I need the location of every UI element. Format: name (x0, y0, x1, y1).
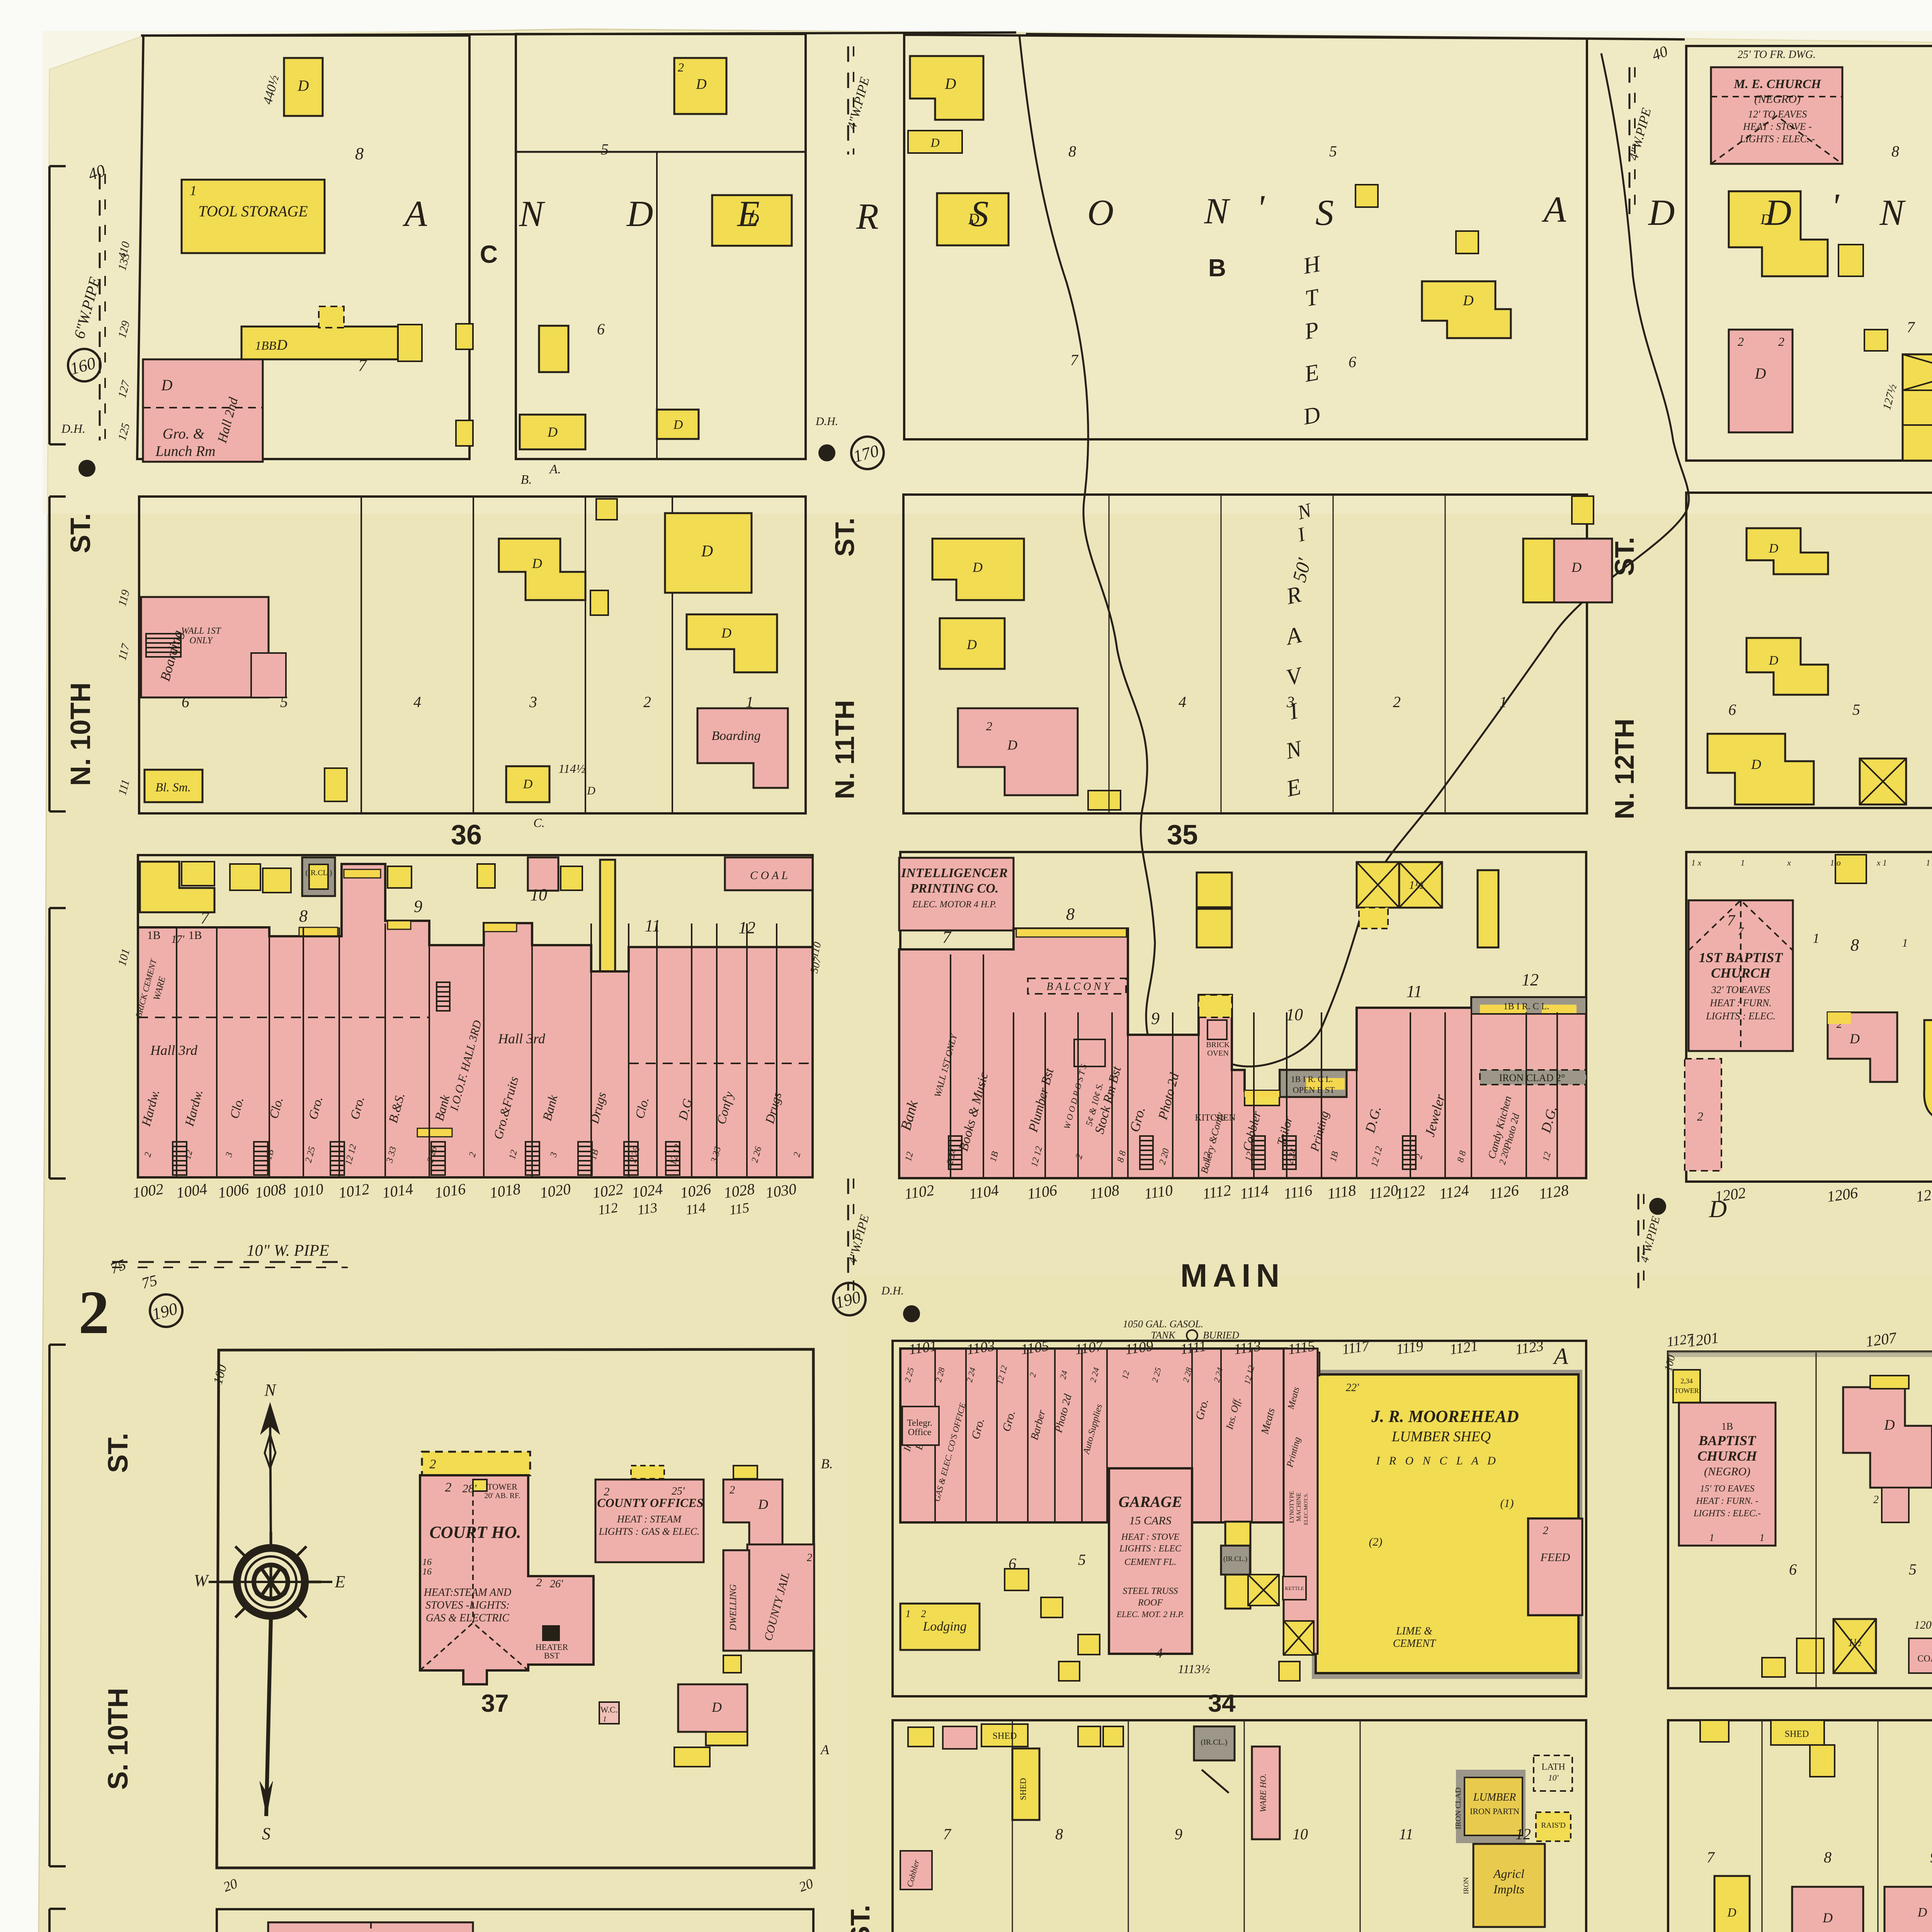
svg-text:x 1: x 1 (1876, 858, 1887, 867)
svg-text:LUMBER: LUMBER (1473, 1791, 1516, 1803)
svg-text:1: 1 (603, 1715, 607, 1723)
svg-text:1 x: 1 x (1691, 858, 1702, 867)
svg-text:IRON CLAD: IRON CLAD (1454, 1787, 1463, 1829)
svg-text:GARAGE: GARAGE (1119, 1493, 1182, 1510)
svg-text:D.H.: D.H. (881, 1284, 904, 1297)
svg-text:16: 16 (422, 1557, 432, 1567)
svg-text:8: 8 (1891, 143, 1899, 160)
svg-text:D: D (161, 376, 173, 394)
svg-text:9: 9 (414, 897, 422, 916)
svg-text:D: D (1648, 192, 1675, 233)
svg-text:A.: A. (549, 462, 561, 476)
svg-text:(NEGRO): (NEGRO) (1704, 1465, 1750, 1478)
svg-text:S. 10TH: S. 10TH (103, 1688, 134, 1790)
svg-text:D: D (276, 337, 287, 353)
svg-text:D: D (1463, 293, 1473, 309)
svg-text:6: 6 (182, 693, 189, 711)
svg-text:ROOF: ROOF (1138, 1598, 1163, 1608)
svg-text:D: D (626, 193, 653, 234)
svg-text:TOWER: TOWER (487, 1482, 517, 1492)
svg-text:1: 1 (1741, 858, 1745, 867)
svg-text:1: 1 (1499, 693, 1507, 711)
svg-text:OPEN B ST: OPEN B ST (1293, 1085, 1335, 1095)
svg-text:25': 25' (672, 1485, 685, 1497)
svg-text:IRON: IRON (1462, 1877, 1470, 1894)
svg-text:COURT HO.: COURT HO. (429, 1523, 521, 1542)
svg-text:Implts: Implts (1493, 1882, 1524, 1896)
svg-text:2: 2 (1393, 693, 1401, 711)
svg-text:D: D (1822, 1910, 1833, 1925)
svg-text:Gro. &: Gro. & (163, 426, 205, 442)
svg-text:': ' (1257, 187, 1265, 228)
svg-text:2: 2 (1738, 335, 1744, 349)
svg-text:2: 2 (730, 1484, 735, 1496)
svg-text:1B: 1B (147, 929, 160, 942)
svg-text:S: S (262, 1824, 270, 1843)
svg-text:8: 8 (1068, 143, 1076, 160)
svg-text:D: D (721, 625, 731, 641)
svg-text:OVEN: OVEN (1207, 1049, 1229, 1058)
svg-text:1: 1 (1709, 1532, 1714, 1543)
svg-text:114: 114 (685, 1200, 706, 1218)
svg-text:CHURCH: CHURCH (1697, 1448, 1757, 1464)
svg-text:7: 7 (358, 356, 367, 375)
svg-text:7: 7 (1070, 351, 1079, 369)
svg-text:8: 8 (299, 906, 308, 925)
svg-text:D: D (966, 637, 977, 652)
svg-text:WARE HO.: WARE HO. (1258, 1774, 1268, 1812)
svg-text:D: D (701, 543, 713, 560)
svg-text:7: 7 (201, 908, 210, 927)
svg-text:CEMENT FL.: CEMENT FL. (1124, 1557, 1176, 1567)
svg-text:D: D (1007, 737, 1017, 753)
svg-text:7: 7 (1738, 925, 1745, 938)
svg-text:SHED: SHED (1785, 1729, 1809, 1739)
svg-text:Lodging: Lodging (922, 1619, 966, 1634)
svg-text:INTELLIGENCER: INTELLIGENCER (901, 866, 1008, 880)
svg-text:D: D (758, 1497, 768, 1512)
svg-text:25' TO FR. DWG.: 25' TO FR. DWG. (1738, 49, 1816, 61)
svg-text:5: 5 (1078, 1551, 1086, 1568)
svg-text:PRINTING CO.: PRINTING CO. (910, 881, 999, 896)
svg-text:MACHINE: MACHINE (1296, 1493, 1302, 1522)
svg-text:10: 10 (530, 885, 547, 904)
svg-text:1: 1 (1813, 930, 1820, 946)
svg-text:2: 2 (1873, 1494, 1879, 1506)
svg-text:4: 4 (413, 693, 421, 711)
svg-text:2: 2 (986, 719, 992, 733)
svg-text:37: 37 (481, 1689, 509, 1717)
svg-text:3: 3 (529, 693, 537, 711)
svg-text:D.H.: D.H. (61, 422, 85, 435)
svg-text:6: 6 (1728, 701, 1736, 718)
svg-text:BAPTIST: BAPTIST (1698, 1433, 1757, 1448)
svg-text:BST: BST (544, 1651, 560, 1660)
svg-text:15' TO EAVES: 15' TO EAVES (1700, 1484, 1755, 1494)
svg-text:D: D (587, 784, 595, 797)
svg-text:36: 36 (451, 820, 482, 850)
svg-text:10: 10 (1286, 1005, 1303, 1024)
svg-text:D: D (1751, 757, 1761, 772)
svg-text:S: S (970, 193, 989, 234)
svg-text:D: D (673, 418, 683, 432)
svg-text:1: 1 (190, 183, 197, 198)
svg-text:D: D (1769, 653, 1779, 668)
svg-text:B.: B. (821, 1456, 833, 1471)
svg-text:1: 1 (1926, 858, 1930, 867)
svg-text:A: A (820, 1742, 830, 1757)
svg-text:SHED: SHED (1018, 1778, 1028, 1800)
svg-text:STEEL TRUSS: STEEL TRUSS (1123, 1586, 1178, 1596)
svg-text:6: 6 (1789, 1561, 1797, 1578)
svg-text:R: R (856, 196, 879, 237)
svg-text:3: 3 (1286, 693, 1294, 711)
svg-text:12: 12 (738, 918, 755, 937)
svg-text:HEAT : FURN. -: HEAT : FURN. - (1696, 1496, 1758, 1506)
svg-text:E: E (335, 1572, 345, 1591)
svg-text:2: 2 (604, 1485, 610, 1498)
svg-text:N. 10TH: N. 10TH (65, 682, 96, 786)
svg-text:Lunch Rm: Lunch Rm (155, 443, 215, 459)
svg-text:ST.: ST. (65, 513, 96, 553)
svg-text:2: 2 (445, 1480, 452, 1495)
svg-text:22': 22' (1346, 1382, 1359, 1394)
svg-text:Hall 3rd: Hall 3rd (498, 1031, 546, 1046)
svg-text:12' TO EAVES: 12' TO EAVES (1748, 109, 1807, 120)
svg-text:O: O (1087, 192, 1114, 233)
svg-text:x: x (1787, 858, 1791, 867)
svg-text:(1): (1) (1500, 1497, 1514, 1510)
svg-text:IRON PARTN: IRON PARTN (1470, 1806, 1519, 1816)
svg-text:ELEC. MOTOR 4 H.P.: ELEC. MOTOR 4 H.P. (912, 900, 997, 910)
svg-text:7: 7 (943, 1825, 952, 1843)
svg-text:1B: 1B (188, 929, 202, 942)
svg-text:12: 12 (1515, 1825, 1531, 1843)
svg-text:2: 2 (430, 1457, 436, 1471)
svg-text:D: D (547, 424, 558, 440)
svg-text:11: 11 (1399, 1825, 1413, 1843)
svg-text:10" W. PIPE: 10" W. PIPE (247, 1242, 329, 1260)
svg-text:1B I R. C L.: 1B I R. C L. (1291, 1074, 1333, 1084)
svg-text:N: N (519, 193, 545, 234)
svg-text:8: 8 (1055, 1825, 1063, 1843)
svg-text:TOWER: TOWER (1674, 1387, 1699, 1395)
svg-text:ST.: ST. (103, 1433, 134, 1473)
svg-text:C: C (480, 240, 498, 268)
svg-text:7: 7 (1907, 318, 1915, 336)
svg-text:2: 2 (1543, 1525, 1548, 1537)
svg-text:9: 9 (1175, 1825, 1182, 1843)
svg-text:2: 2 (643, 693, 651, 711)
svg-text:E: E (736, 193, 760, 234)
svg-text:5: 5 (1329, 143, 1337, 160)
svg-text:S: S (1315, 192, 1334, 233)
svg-text:LIGHTS : ELEC.: LIGHTS : ELEC. (1706, 1010, 1776, 1022)
svg-text:1½: 1½ (1409, 879, 1423, 891)
svg-text:9: 9 (1151, 1009, 1160, 1028)
svg-text:MAIN: MAIN (1180, 1257, 1285, 1294)
svg-text:1 o: 1 o (1830, 858, 1841, 867)
svg-text:GAS & ELECTRIC: GAS & ELECTRIC (426, 1612, 510, 1624)
svg-text:8: 8 (355, 144, 364, 163)
svg-text:2,34: 2,34 (1680, 1377, 1693, 1385)
svg-text:WALL 1ST: WALL 1ST (181, 626, 221, 636)
svg-text:': ' (1831, 186, 1840, 227)
svg-text:17': 17' (171, 934, 185, 946)
svg-text:LYNOTYPE: LYNOTYPE (1289, 1491, 1295, 1523)
svg-text:D: D (1764, 192, 1792, 233)
svg-text:1207½: 1207½ (1914, 1619, 1932, 1631)
svg-text:SHED: SHED (993, 1731, 1017, 1741)
svg-text:ST.: ST. (830, 517, 860, 556)
svg-text:1ST BAPTIST: 1ST BAPTIST (1699, 950, 1783, 965)
svg-text:BRICK: BRICK (1206, 1041, 1230, 1049)
svg-text:8: 8 (1824, 1849, 1832, 1866)
svg-text:LIGHTS : ELEC.-: LIGHTS : ELEC.- (1693, 1509, 1761, 1519)
svg-text:HEAT:STEAM AND: HEAT:STEAM AND (423, 1587, 511, 1599)
svg-text:2: 2 (807, 1552, 812, 1564)
svg-text:N. 12TH: N. 12TH (1609, 719, 1639, 820)
svg-text:7: 7 (1727, 912, 1736, 929)
svg-text:ELEC.MOT.S.: ELEC.MOT.S. (1303, 1493, 1309, 1525)
svg-text:LIGHTS : ELEC: LIGHTS : ELEC (1119, 1544, 1182, 1554)
svg-text:N: N (1879, 192, 1906, 233)
svg-text:B: B (1208, 254, 1226, 282)
svg-text:114½: 114½ (558, 762, 585, 776)
svg-text:FEED: FEED (1540, 1551, 1570, 1564)
svg-text:1B: 1B (1721, 1421, 1733, 1432)
svg-text:HEAT : FURN.: HEAT : FURN. (1709, 997, 1772, 1009)
svg-text:7: 7 (1707, 1849, 1715, 1866)
svg-text:LATH: LATH (1541, 1762, 1565, 1772)
svg-text:1113½: 1113½ (1178, 1662, 1210, 1676)
svg-text:Hall 3rd: Hall 3rd (150, 1043, 198, 1058)
svg-text:6: 6 (1009, 1555, 1016, 1572)
svg-text:COAL: COAL (1917, 1654, 1932, 1664)
svg-text:(IR.CL.): (IR.CL.) (1223, 1555, 1247, 1563)
svg-text:LIME &: LIME & (1396, 1625, 1432, 1637)
svg-text:Boarding: Boarding (711, 729, 760, 743)
svg-text:Agricl: Agricl (1493, 1867, 1524, 1881)
svg-text:5: 5 (601, 141, 609, 158)
svg-text:D: D (930, 136, 939, 150)
svg-text:ST.: ST. (1609, 537, 1639, 576)
svg-text:D: D (523, 777, 533, 791)
svg-text:HEAT : STOVE -: HEAT : STOVE - (1743, 121, 1812, 132)
svg-text:1: 1 (906, 1608, 911, 1619)
svg-text:LIGHTS : GAS & ELEC.: LIGHTS : GAS & ELEC. (599, 1526, 700, 1537)
svg-text:ONLY: ONLY (189, 636, 213, 646)
svg-text:1½: 1½ (1848, 1637, 1862, 1649)
svg-text:11: 11 (645, 916, 661, 935)
svg-text:(IR.CL.): (IR.CL.) (306, 869, 332, 877)
svg-text:16: 16 (422, 1567, 432, 1577)
svg-text:1: 1 (1902, 937, 1908, 949)
svg-text:15 CARS: 15 CARS (1129, 1514, 1171, 1527)
svg-text:Bl. Sm.: Bl. Sm. (155, 780, 191, 794)
svg-text:5: 5 (1852, 701, 1860, 718)
svg-text:113: 113 (636, 1200, 658, 1218)
svg-text:1: 1 (746, 693, 753, 711)
svg-text:A: A (402, 193, 427, 234)
svg-text:D: D (696, 76, 706, 92)
svg-text:1050 GAL. GASOL.: 1050 GAL. GASOL. (1123, 1318, 1203, 1330)
svg-text:10': 10' (1548, 1773, 1559, 1782)
svg-text:5: 5 (280, 693, 288, 711)
svg-text:STOVES -LIGHTS:: STOVES -LIGHTS: (425, 1599, 510, 1611)
svg-text:112: 112 (597, 1200, 619, 1218)
svg-text:D: D (1709, 1195, 1727, 1223)
svg-text:LIGHTS : ELEC. -: LIGHTS : ELEC. - (1739, 133, 1815, 145)
svg-text:A: A (1553, 1344, 1568, 1369)
svg-text:D: D (1755, 365, 1766, 382)
svg-text:ELEC. MOT. 2 H.P.: ELEC. MOT. 2 H.P. (1116, 1609, 1184, 1619)
svg-text:W.C.: W.C. (600, 1705, 617, 1714)
svg-text:N. 11TH: N. 11TH (830, 700, 860, 799)
svg-text:4: 4 (1179, 693, 1186, 711)
svg-text:32' TO EAVES: 32' TO EAVES (1711, 984, 1770, 995)
svg-text:2: 2 (678, 60, 684, 74)
svg-text:115: 115 (728, 1200, 750, 1218)
svg-text:2: 2 (536, 1576, 542, 1589)
svg-text:11: 11 (1406, 982, 1422, 1001)
svg-text:M. E. CHURCH: M. E. CHURCH (1733, 77, 1821, 91)
svg-text:D: D (1884, 1417, 1895, 1433)
svg-text:D: D (532, 556, 542, 571)
svg-text:C.: C. (533, 816, 544, 830)
svg-text:10: 10 (1293, 1825, 1308, 1843)
svg-text:CHURCH: CHURCH (1711, 965, 1771, 981)
svg-text:(IR.CL.): (IR.CL.) (1201, 1738, 1228, 1747)
svg-text:C O A L: C O A L (750, 869, 788, 882)
svg-text:12: 12 (1522, 970, 1539, 989)
svg-text:J. R. MOOREHEAD: J. R. MOOREHEAD (1371, 1407, 1519, 1426)
svg-text:COUNTY OFFICES: COUNTY OFFICES (597, 1496, 703, 1510)
svg-text:5: 5 (1909, 1561, 1917, 1578)
svg-text:2: 2 (78, 1278, 109, 1347)
svg-text:TOOL STORAGE: TOOL STORAGE (198, 202, 308, 220)
svg-text:N: N (264, 1381, 277, 1400)
svg-text:9: 9 (1930, 1849, 1932, 1866)
svg-text:ST.: ST. (845, 1905, 875, 1932)
svg-text:D: D (972, 560, 983, 575)
svg-text:D: D (711, 1699, 722, 1715)
svg-text:TANK: TANK (1151, 1330, 1176, 1341)
svg-text:(2): (2) (1369, 1536, 1383, 1548)
svg-text:1B I R. C L.: 1B I R. C L. (1503, 1002, 1549, 1012)
svg-text:B.: B. (520, 473, 532, 487)
svg-text:D.H.: D.H. (815, 415, 838, 428)
svg-text:N: N (1204, 190, 1230, 231)
svg-text:KETTLE: KETTLE (1285, 1585, 1304, 1591)
svg-text:D: D (1571, 560, 1582, 575)
svg-text:26': 26' (550, 1578, 563, 1590)
svg-text:D: D (1849, 1031, 1860, 1046)
svg-text:B A L C O N Y: B A L C O N Y (1046, 981, 1111, 993)
svg-text:4: 4 (1156, 1645, 1163, 1661)
svg-text:2: 2 (1697, 1109, 1703, 1123)
svg-text:2: 2 (921, 1608, 926, 1619)
svg-text:D: D (945, 75, 956, 92)
svg-text:Office: Office (908, 1427, 932, 1437)
svg-text:6: 6 (597, 320, 605, 338)
svg-text:A: A (1541, 189, 1566, 230)
svg-text:D: D (1727, 1905, 1736, 1919)
svg-text:CEMENT: CEMENT (1393, 1638, 1437, 1650)
svg-text:8: 8 (1850, 935, 1859, 954)
svg-text:HEAT : STOVE: HEAT : STOVE (1121, 1532, 1180, 1542)
svg-text:HEAT : STEAM: HEAT : STEAM (617, 1514, 682, 1525)
svg-text:6: 6 (1349, 353, 1356, 371)
svg-text:28': 28' (463, 1482, 477, 1495)
svg-text:1: 1 (1760, 1532, 1765, 1543)
svg-text:RAIS'D: RAIS'D (1541, 1821, 1566, 1830)
svg-text:BURIED: BURIED (1203, 1330, 1239, 1341)
svg-text:1BB: 1BB (255, 338, 276, 352)
svg-text:34: 34 (1208, 1689, 1236, 1717)
svg-text:2: 2 (1778, 335, 1784, 349)
svg-text:DWELLING: DWELLING (728, 1584, 738, 1631)
svg-text:D: D (1769, 541, 1779, 556)
svg-text:20' AB. RF.: 20' AB. RF. (484, 1492, 520, 1500)
svg-text:LUMBER SHEQ: LUMBER SHEQ (1391, 1429, 1491, 1445)
svg-text:W: W (194, 1571, 209, 1590)
svg-text:I R O N C L A D: I R O N C L A D (1376, 1454, 1499, 1467)
svg-text:D: D (298, 77, 309, 94)
svg-text:(NEGRO): (NEGRO) (1754, 93, 1801, 105)
svg-text:7: 7 (942, 928, 952, 947)
svg-text:8: 8 (1066, 905, 1075, 923)
svg-text:Telegr.: Telegr. (907, 1418, 932, 1428)
svg-text:35: 35 (1167, 820, 1198, 850)
svg-text:D: D (1917, 1905, 1927, 1920)
svg-text:IRON CLAD 2°: IRON CLAD 2° (1499, 1072, 1565, 1083)
